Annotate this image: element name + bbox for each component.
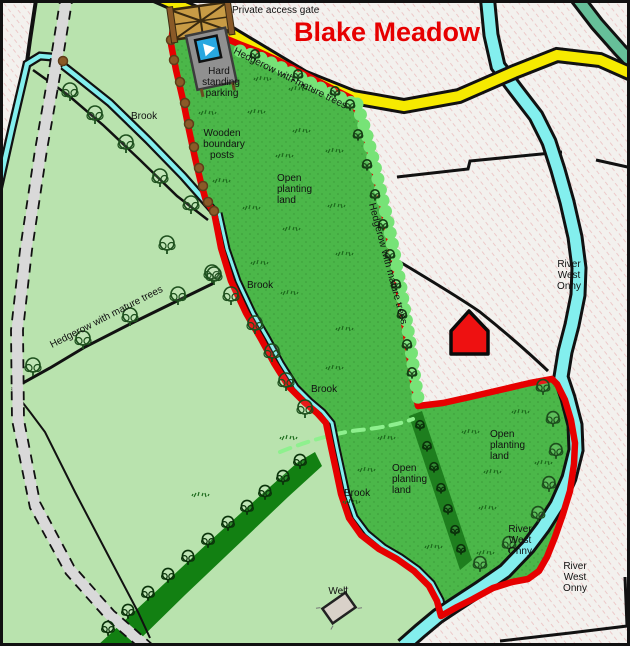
label-line: West	[558, 270, 581, 281]
label-line: River	[508, 524, 532, 535]
label-line: West	[564, 572, 587, 583]
label-brook-nw: Brook	[131, 111, 158, 122]
label-line: Open	[277, 173, 301, 184]
label-river-ne: River West Onny	[557, 259, 581, 292]
label-private-access-gate: Private access gate	[232, 5, 320, 16]
label-line: planting	[277, 184, 312, 195]
label-line: Onny	[563, 583, 587, 594]
parking-waymark-icon	[195, 36, 221, 62]
label-line: planting	[392, 474, 427, 485]
boundary-post-icon	[185, 120, 194, 129]
label-line: land	[392, 485, 411, 496]
label-river-se-outer: River West Onny	[563, 561, 587, 594]
label-line: Open	[490, 429, 514, 440]
boundary-post-icon	[170, 56, 179, 65]
label-river-se-inner: River West Onny	[508, 524, 532, 557]
boundary-post-icon	[190, 143, 199, 152]
label-line: parking	[206, 88, 239, 99]
label-line: standing	[202, 77, 240, 88]
label-well: Well	[328, 586, 347, 597]
label-line: River	[563, 561, 587, 572]
label-line: planting	[490, 440, 525, 451]
label-line: West	[509, 535, 532, 546]
label-line: Wooden	[203, 128, 240, 139]
boundary-post-icon	[59, 57, 68, 66]
boundary-post-icon	[181, 99, 190, 108]
label-brook-w2: Brook	[311, 384, 338, 395]
label-brook-s: Brook	[344, 488, 371, 499]
boundary-post-icon	[199, 182, 208, 191]
label-line: Onny	[557, 281, 581, 292]
boundary-post-icon	[210, 207, 219, 216]
label-line: Onny	[508, 546, 532, 557]
label-line: boundary	[203, 139, 245, 150]
map-canvas: Private access gate Blake Meadow Hard st…	[0, 0, 630, 646]
label-line: Hard	[208, 66, 230, 77]
label-line: land	[490, 451, 509, 462]
boundary-post-icon	[176, 78, 185, 87]
label-line: River	[557, 259, 581, 270]
label-line: posts	[210, 150, 234, 161]
boundary-post-icon	[195, 164, 204, 173]
label-line: land	[277, 195, 296, 206]
map-title: Blake Meadow	[294, 17, 481, 47]
label-brook-w1: Brook	[247, 280, 274, 291]
boundary-post-icon	[204, 198, 213, 207]
label-line: Open	[392, 463, 416, 474]
blake-meadow-map: Private access gate Blake Meadow Hard st…	[0, 0, 630, 646]
